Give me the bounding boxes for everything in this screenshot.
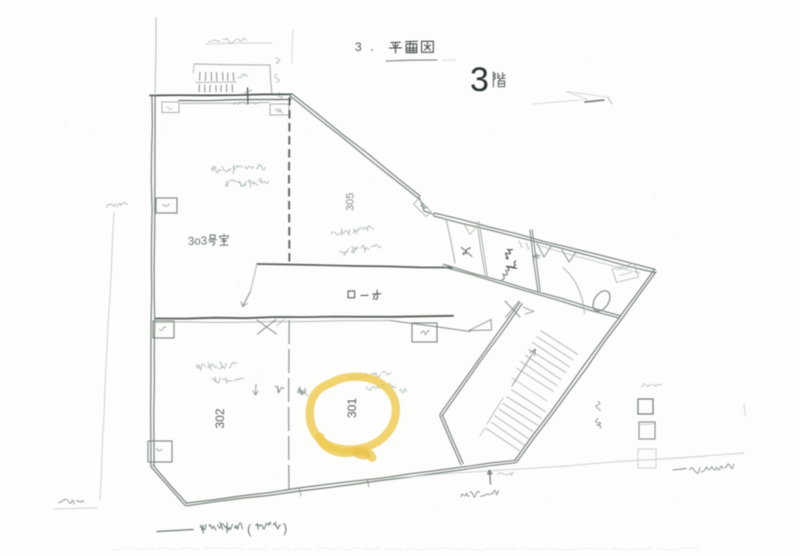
svg-text:305: 305 xyxy=(345,193,357,211)
svg-text:302: 302 xyxy=(213,408,227,428)
svg-text:): ) xyxy=(283,520,288,535)
svg-text:3: 3 xyxy=(470,61,489,99)
svg-text:3: 3 xyxy=(355,40,362,54)
svg-text:3o3: 3o3 xyxy=(188,235,208,248)
svg-text:301: 301 xyxy=(345,398,359,418)
